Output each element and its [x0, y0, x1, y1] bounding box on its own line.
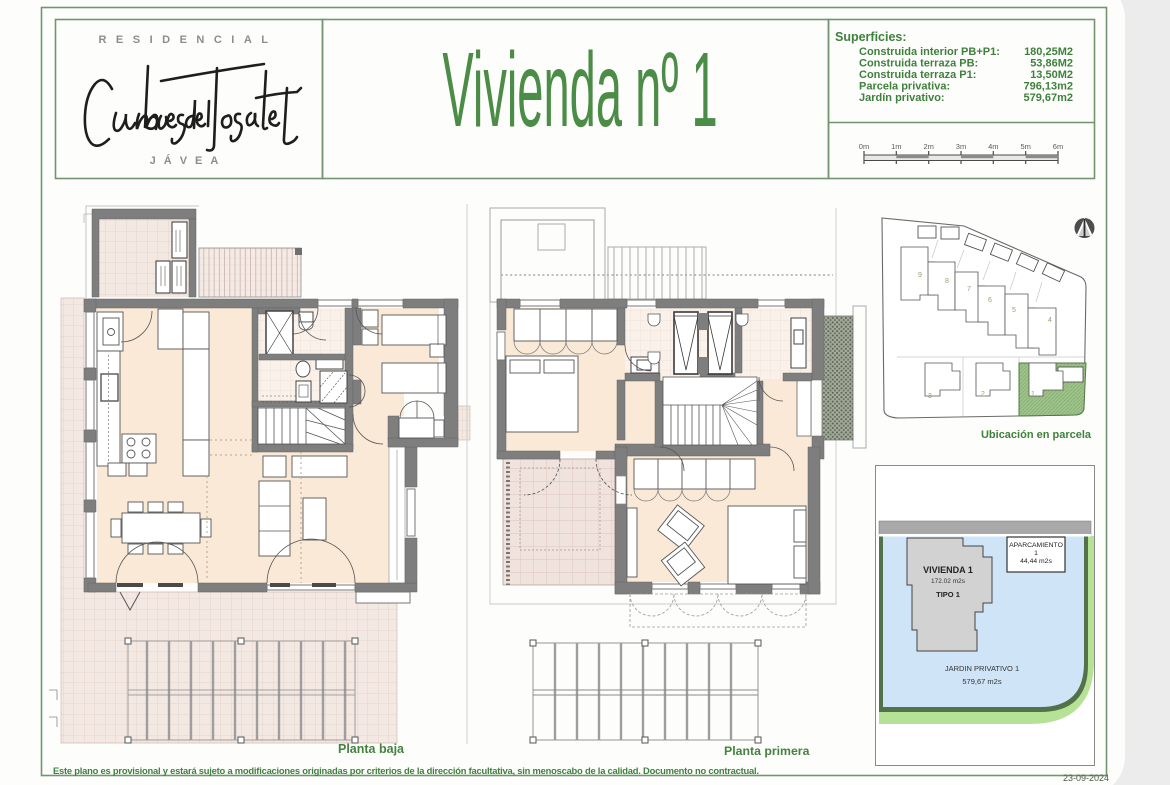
svg-text:3: 3 — [928, 393, 932, 400]
svg-text:6: 6 — [988, 297, 992, 304]
svg-text:1m: 1m — [891, 142, 901, 151]
svg-text:Jardín privativo:: Jardín privativo: — [859, 92, 945, 104]
svg-text:2m: 2m — [923, 142, 933, 151]
svg-text:Vivienda nº 1: Vivienda nº 1 — [442, 32, 717, 150]
svg-text:TIPO 1: TIPO 1 — [936, 590, 960, 599]
svg-text:579,67 m2s: 579,67 m2s — [962, 677, 1001, 686]
svg-text:Superficies:: Superficies: — [835, 30, 907, 44]
svg-text:9: 9 — [918, 272, 922, 279]
svg-text:23-09-2024: 23-09-2024 — [1063, 773, 1109, 783]
svg-text:VIVIENDA 1: VIVIENDA 1 — [923, 565, 973, 575]
svg-text:2: 2 — [981, 391, 985, 398]
svg-text:53,86M2: 53,86M2 — [1030, 58, 1073, 70]
svg-text:Construida interior PB+P1:: Construida interior PB+P1: — [859, 46, 1000, 58]
svg-text:Construida terraza P1:: Construida terraza P1: — [859, 69, 976, 81]
svg-text:RESIDENCIAL: RESIDENCIAL — [98, 34, 277, 46]
svg-text:5: 5 — [1012, 307, 1016, 314]
svg-text:Planta baja: Planta baja — [338, 742, 405, 756]
svg-text:Planta primera: Planta primera — [724, 744, 810, 758]
svg-text:APARCAMIENTO: APARCAMIENTO — [1009, 542, 1063, 549]
svg-text:Ubicación en parcela: Ubicación en parcela — [981, 429, 1092, 441]
svg-text:0m: 0m — [859, 142, 869, 151]
svg-text:579,67m2: 579,67m2 — [1023, 92, 1073, 104]
svg-text:8: 8 — [945, 278, 949, 285]
svg-text:13,50M2: 13,50M2 — [1030, 69, 1073, 81]
svg-text:6m: 6m — [1053, 142, 1063, 151]
svg-text:1: 1 — [1034, 550, 1038, 557]
svg-text:1: 1 — [1031, 391, 1035, 398]
svg-text:796,13m2: 796,13m2 — [1023, 81, 1073, 93]
svg-text:JÁVEA: JÁVEA — [150, 154, 227, 167]
svg-text:180,25M2: 180,25M2 — [1024, 46, 1073, 58]
svg-text:JARDIN PRIVATIVO 1: JARDIN PRIVATIVO 1 — [945, 664, 1019, 673]
svg-text:7: 7 — [967, 286, 971, 293]
svg-text:4m: 4m — [988, 142, 998, 151]
svg-text:44,44 m2s: 44,44 m2s — [1020, 558, 1052, 565]
svg-text:Construida terraza PB:: Construida terraza PB: — [859, 58, 978, 70]
svg-text:5m: 5m — [1020, 142, 1030, 151]
svg-text:Este plano es provisional y es: Este plano es provisional y estará sujet… — [53, 765, 759, 776]
svg-text:Parcela privativa:: Parcela privativa: — [859, 81, 950, 93]
svg-text:4: 4 — [1048, 317, 1052, 324]
svg-text:172.02 m2s: 172.02 m2s — [931, 578, 966, 585]
svg-text:3m: 3m — [956, 142, 966, 151]
